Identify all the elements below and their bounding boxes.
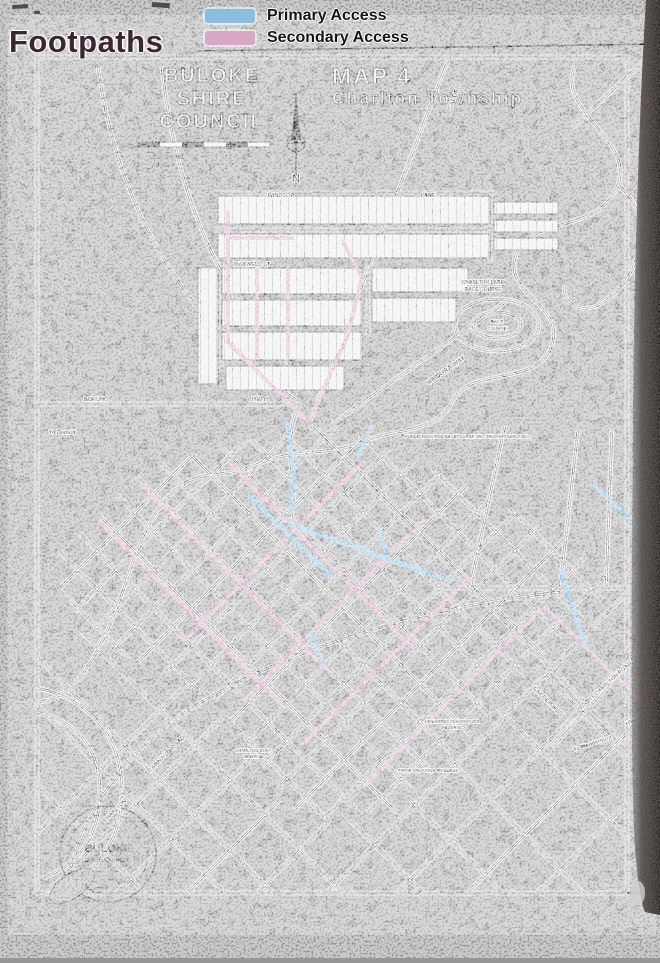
primary-access-label: Primary Access	[267, 8, 387, 24]
secondary-access-swatch	[205, 31, 255, 45]
primary-access-swatch	[205, 9, 255, 23]
page-title: Footpaths	[9, 24, 163, 60]
secondary-access-label: Secondary Access	[267, 30, 409, 46]
legend-row-secondary: Secondary Access	[205, 28, 409, 47]
legend-row-primary: Primary Access	[205, 6, 409, 25]
map-canvas: BULOKE SHIRE COUNCIL BULOKE SHIRE COUNCI…	[0, 0, 660, 958]
legend: Primary Access Secondary Access	[205, 6, 409, 50]
scan-noise	[0, 0, 660, 958]
scanned-map-page: BULOKE SHIRE COUNCIL BULOKE SHIRE COUNCI…	[0, 0, 660, 958]
